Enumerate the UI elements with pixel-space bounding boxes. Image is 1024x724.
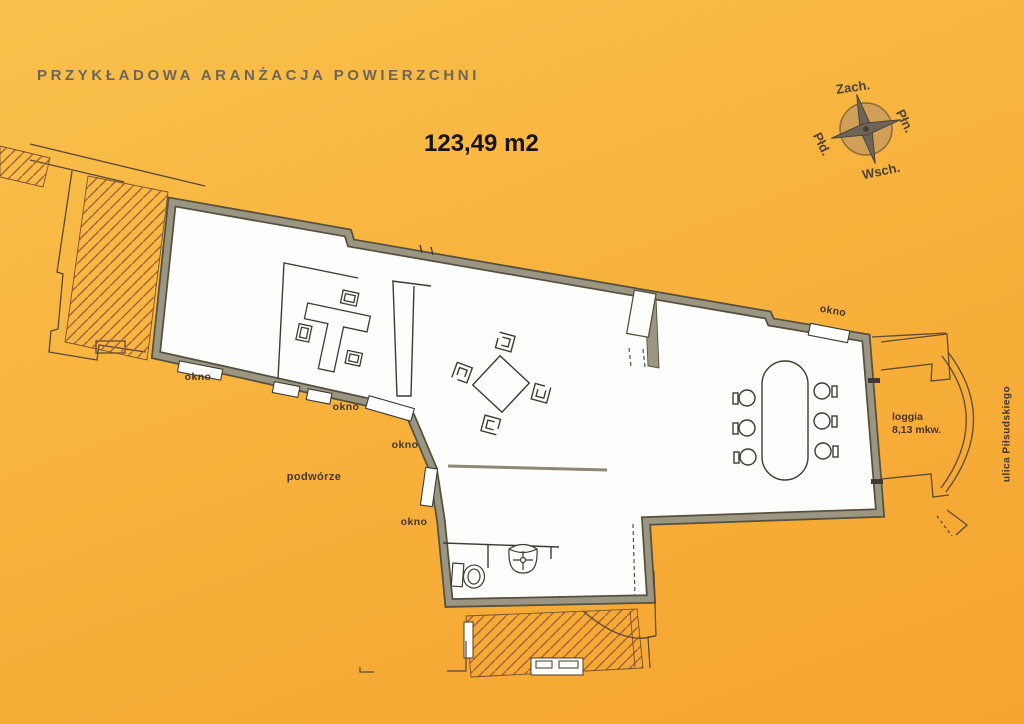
sink — [509, 545, 537, 574]
courtyard-label: podwórze — [287, 471, 342, 483]
loggia-area: 8,13 mkw. — [892, 424, 941, 437]
page-title: PRZYKŁADOWA ARANŻACJA POWIERZCHNI — [37, 67, 480, 84]
window-label: okno — [333, 401, 360, 413]
window-label: okno — [401, 516, 428, 528]
neighbor-steps — [360, 641, 466, 672]
street-label: ulica Piłsudskiego — [1002, 386, 1013, 482]
conference-table — [762, 361, 808, 480]
hatched-area-left — [0, 146, 168, 360]
desk-chair — [340, 290, 358, 306]
floor-plan-page: PRZYKŁADOWA ARANŻACJA POWIERZCHNI 123,49… — [0, 0, 1024, 724]
window-label: okno — [185, 371, 212, 383]
stairs — [531, 658, 583, 675]
loggia-name: loggia — [892, 411, 941, 424]
desk-chair — [345, 350, 362, 366]
desk-chair — [296, 324, 312, 342]
window-label: okno — [392, 439, 419, 451]
total-area-label: 123,49 m2 — [424, 130, 539, 158]
loggia-label: loggia 8,13 mkw. — [892, 411, 941, 437]
basement-window — [464, 622, 473, 658]
floor-plan-drawing — [0, 0, 1024, 724]
toilet — [451, 563, 485, 589]
